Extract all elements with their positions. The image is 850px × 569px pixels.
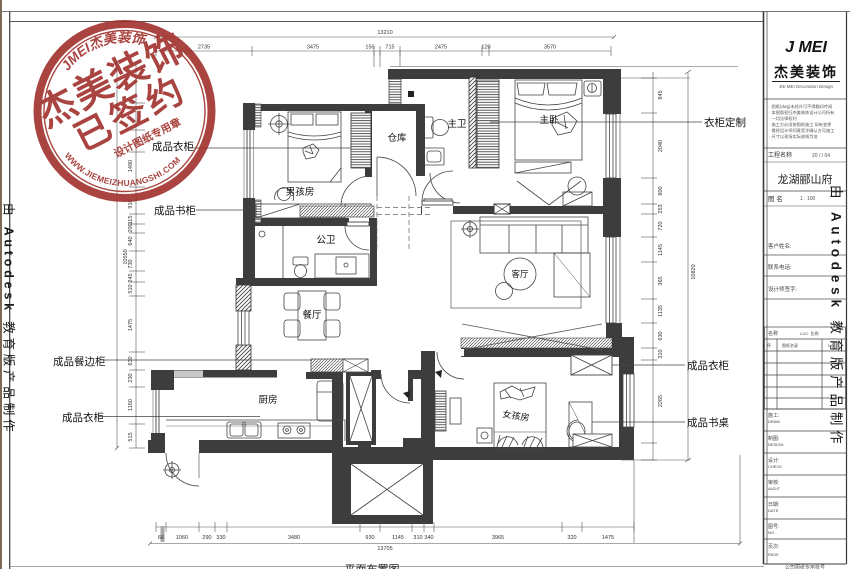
svg-text:主卧: 主卧 bbox=[539, 114, 559, 126]
svg-text:厨房: 厨房 bbox=[258, 394, 277, 406]
svg-text:· 一切法律权利: · 一切法律权利 bbox=[769, 115, 797, 122]
svg-text:630: 630 bbox=[658, 331, 664, 340]
svg-text:设计师签字:: 设计师签字: bbox=[768, 285, 798, 293]
svg-text:成品书柜: 成品书柜 bbox=[154, 204, 196, 217]
svg-text:330: 330 bbox=[216, 535, 225, 541]
svg-text:· 施工方必须按图纸施工 如有变更: · 施工方必须按图纸施工 如有变更 bbox=[769, 121, 832, 128]
svg-text:13210: 13210 bbox=[377, 30, 392, 36]
svg-text:730: 730 bbox=[128, 259, 134, 268]
svg-text:由 Autodesk 教育版产品制作: 由 Autodesk 教育版产品制作 bbox=[2, 203, 17, 435]
svg-text:3480: 3480 bbox=[288, 535, 300, 541]
svg-text:630: 630 bbox=[128, 356, 134, 365]
svg-text:DRAW: DRAW bbox=[768, 419, 780, 424]
svg-text:施工:: 施工: bbox=[768, 412, 779, 419]
svg-text:2040: 2040 bbox=[658, 140, 664, 152]
svg-text:客厅: 客厅 bbox=[511, 269, 529, 279]
svg-text:PAGE: PAGE bbox=[768, 552, 779, 557]
svg-text:序: 序 bbox=[767, 342, 771, 348]
svg-text:1475: 1475 bbox=[128, 319, 134, 331]
svg-text:66: 66 bbox=[158, 535, 164, 541]
svg-text:800: 800 bbox=[658, 186, 664, 195]
svg-text:1060: 1060 bbox=[176, 535, 188, 541]
svg-text:餐厅: 餐厅 bbox=[302, 309, 322, 321]
svg-text:2265: 2265 bbox=[658, 395, 664, 407]
svg-text:290: 290 bbox=[202, 535, 211, 541]
svg-text:衣柜定制: 衣柜定制 bbox=[704, 116, 746, 129]
svg-text:1135: 1135 bbox=[658, 305, 664, 317]
svg-text:CHECK: CHECK bbox=[768, 464, 782, 469]
svg-text:JIE MEI Decoration Design: JIE MEI Decoration Design bbox=[779, 84, 834, 89]
svg-text:图 名: 图 名 bbox=[768, 194, 783, 203]
svg-text:1480: 1480 bbox=[128, 160, 134, 172]
svg-text:主卫: 主卫 bbox=[447, 118, 467, 130]
svg-text:1160: 1160 bbox=[128, 399, 134, 411]
svg-text:杰美装饰: 杰美装饰 bbox=[774, 64, 838, 80]
svg-text:成品衣柜: 成品衣柜 bbox=[62, 411, 104, 424]
svg-text:310: 310 bbox=[658, 349, 664, 358]
svg-text:成品衣柜: 成品衣柜 bbox=[687, 359, 729, 372]
svg-text:客户姓名:: 客户姓名: bbox=[768, 242, 792, 250]
svg-text:图纸名录: 图纸名录 bbox=[782, 342, 798, 348]
svg-text:245: 245 bbox=[128, 273, 134, 282]
svg-text:720: 720 bbox=[658, 221, 664, 230]
svg-text:365: 365 bbox=[658, 276, 664, 285]
svg-text:640: 640 bbox=[128, 236, 134, 245]
svg-text:J MEI: J MEI bbox=[785, 39, 827, 56]
svg-text:· 本图版权归杰美装饰设计公司所有: · 本图版权归杰美装饰设计公司所有 bbox=[769, 109, 834, 116]
svg-text:· 需经设计师同意签字确认方可施工: · 需经设计师同意签字确认方可施工 bbox=[769, 127, 834, 134]
svg-text:1475: 1475 bbox=[602, 535, 614, 541]
svg-text:150: 150 bbox=[365, 45, 374, 51]
svg-text:公卫: 公卫 bbox=[316, 235, 336, 246]
svg-text:仓库: 仓库 bbox=[387, 132, 407, 144]
svg-text:2475: 2475 bbox=[435, 45, 447, 51]
svg-text:LOC. 比例: LOC. 比例 bbox=[800, 330, 818, 336]
svg-text:由 Autodesk 教育版产品制作: 由 Autodesk 教育版产品制作 bbox=[829, 185, 844, 448]
svg-text:230: 230 bbox=[128, 373, 134, 382]
svg-text:1145: 1145 bbox=[392, 535, 404, 541]
svg-text:1 : 100: 1 : 100 bbox=[800, 196, 816, 202]
svg-text:10820: 10820 bbox=[691, 264, 697, 279]
svg-text:工程名称: 工程名称 bbox=[768, 151, 792, 159]
svg-text:平面布置图: 平面布置图 bbox=[345, 563, 400, 569]
svg-text:AUDIT: AUDIT bbox=[768, 486, 781, 491]
svg-text:515: 515 bbox=[128, 432, 134, 441]
svg-text:320: 320 bbox=[567, 535, 576, 541]
svg-text:成品餐边柜: 成品餐边柜 bbox=[53, 355, 106, 368]
svg-text:NO.: NO. bbox=[768, 530, 775, 535]
svg-text:253: 253 bbox=[658, 204, 664, 213]
svg-text:3475: 3475 bbox=[307, 45, 319, 51]
svg-text:3965: 3965 bbox=[492, 535, 504, 541]
svg-text:13705: 13705 bbox=[377, 546, 392, 552]
svg-text:制图:: 制图: bbox=[768, 435, 779, 442]
svg-text:115: 115 bbox=[128, 216, 134, 225]
svg-text:男孩房: 男孩房 bbox=[286, 186, 315, 198]
svg-text:审核:: 审核: bbox=[768, 479, 779, 486]
svg-text:设计:: 设计: bbox=[768, 457, 779, 464]
svg-text:310: 310 bbox=[413, 535, 422, 541]
svg-text:龙湖郦山府: 龙湖郦山府 bbox=[778, 172, 833, 186]
svg-text:1145: 1145 bbox=[658, 244, 664, 256]
svg-text:3570: 3570 bbox=[544, 45, 556, 51]
svg-text:· 尺寸以现场实际放线为准: · 尺寸以现场实际放线为准 bbox=[769, 133, 818, 140]
svg-text:2735: 2735 bbox=[198, 45, 210, 51]
svg-text:公司图纸专用批号: 公司图纸专用批号 bbox=[785, 564, 825, 569]
svg-text:名称: 名称 bbox=[768, 330, 778, 337]
svg-text:DATE: DATE bbox=[768, 508, 779, 513]
svg-text:715: 715 bbox=[385, 45, 394, 51]
svg-text:120: 120 bbox=[481, 45, 490, 51]
svg-text:845: 845 bbox=[658, 90, 664, 99]
svg-text:200: 200 bbox=[128, 223, 134, 232]
svg-text:510: 510 bbox=[128, 284, 134, 293]
svg-text:联系电话:: 联系电话: bbox=[768, 263, 792, 271]
svg-text:340: 340 bbox=[424, 535, 433, 541]
svg-text:· 图纸(dwg)未经许可不得翻印传阅: · 图纸(dwg)未经许可不得翻印传阅 bbox=[769, 103, 832, 110]
svg-text:页次:: 页次: bbox=[768, 543, 779, 550]
svg-text:成品衣柜: 成品衣柜 bbox=[152, 140, 194, 153]
svg-text:DESIGN: DESIGN bbox=[768, 442, 783, 447]
svg-text:930: 930 bbox=[365, 535, 374, 541]
svg-text:成品书桌: 成品书桌 bbox=[687, 416, 729, 429]
svg-text:20 / / 04: 20 / / 04 bbox=[812, 153, 830, 159]
